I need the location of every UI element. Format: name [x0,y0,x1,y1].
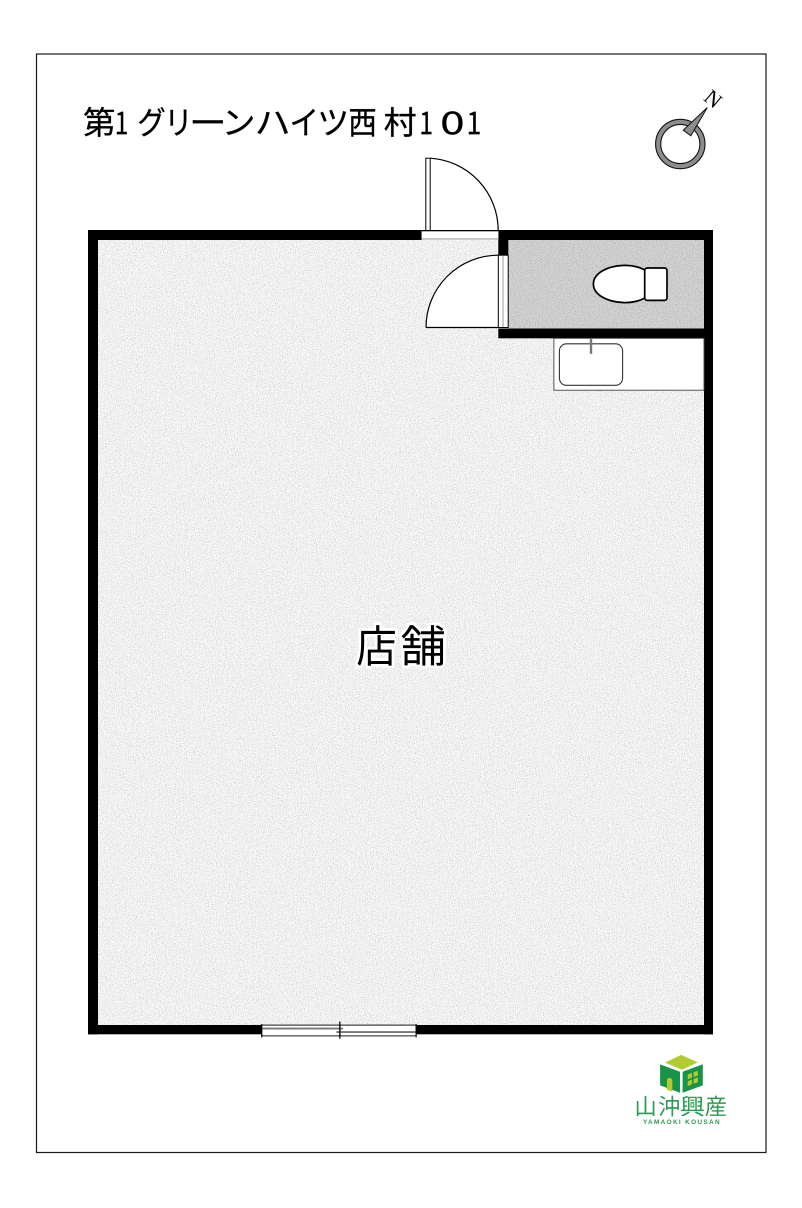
svg-text:YAMAOKI KOUSAN: YAMAOKI KOUSAN [643,1119,721,1126]
